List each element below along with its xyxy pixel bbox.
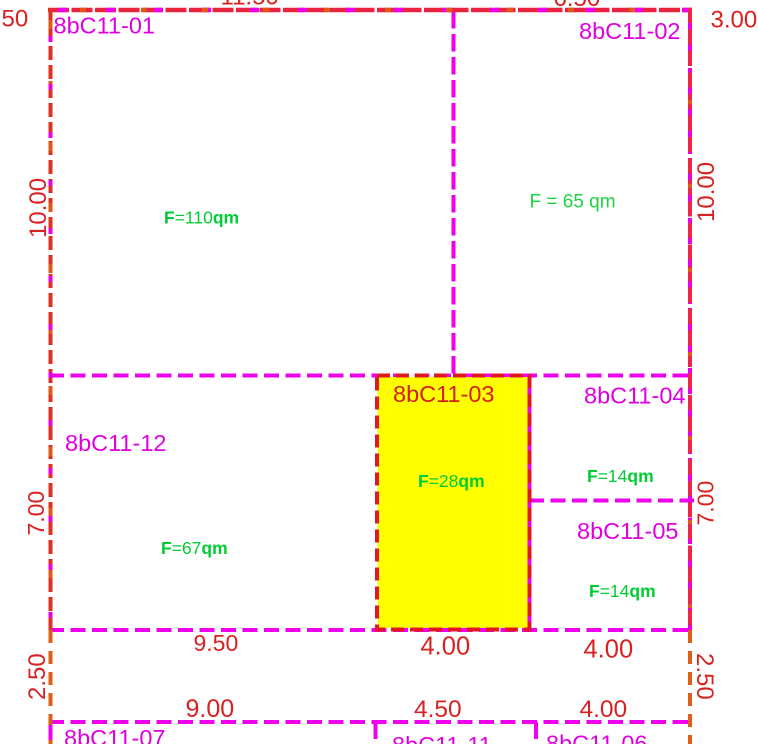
svg-text:8bC11-07: 8bC11-07 bbox=[64, 725, 165, 744]
svg-text:50: 50 bbox=[2, 6, 29, 33]
svg-text:8bC11-06: 8bC11-06 bbox=[546, 731, 647, 744]
svg-text:4.50: 4.50 bbox=[414, 696, 462, 723]
svg-text:8bC11-11: 8bC11-11 bbox=[392, 732, 492, 744]
svg-text:4.00: 4.00 bbox=[584, 636, 634, 664]
svg-text:8bC11-04: 8bC11-04 bbox=[584, 383, 685, 409]
svg-text:3.00: 3.00 bbox=[711, 7, 758, 34]
svg-text:2.50: 2.50 bbox=[24, 653, 51, 700]
svg-text:8bC11-01: 8bC11-01 bbox=[54, 13, 155, 39]
svg-text:4.00: 4.00 bbox=[421, 633, 471, 661]
svg-text:10.00: 10.00 bbox=[25, 178, 52, 238]
svg-text:F=67qm: F=67qm bbox=[161, 538, 228, 558]
svg-text:8bC11-03: 8bC11-03 bbox=[393, 381, 494, 407]
svg-text:11.50: 11.50 bbox=[221, 0, 279, 11]
svg-text:F=28qm: F=28qm bbox=[418, 471, 485, 491]
svg-text:8bC11-12: 8bC11-12 bbox=[65, 430, 166, 456]
svg-text:7.00: 7.00 bbox=[693, 481, 719, 526]
svg-text:8bC11-05: 8bC11-05 bbox=[577, 518, 678, 544]
svg-text:2.50: 2.50 bbox=[691, 653, 718, 700]
svg-text:7.00: 7.00 bbox=[23, 491, 49, 536]
svg-text:4.00: 4.00 bbox=[580, 696, 628, 723]
svg-text:F=14qm: F=14qm bbox=[587, 466, 654, 486]
svg-text:9.00: 9.00 bbox=[186, 695, 235, 723]
svg-text:F = 65 qm: F = 65 qm bbox=[530, 192, 616, 213]
svg-text:6.50: 6.50 bbox=[554, 0, 601, 12]
svg-text:F=110qm: F=110qm bbox=[164, 208, 239, 228]
svg-text:8bC11-02: 8bC11-02 bbox=[579, 18, 680, 44]
svg-text:10.00: 10.00 bbox=[693, 162, 720, 222]
svg-text:9.50: 9.50 bbox=[194, 630, 239, 656]
svg-text:F=14qm: F=14qm bbox=[589, 581, 656, 601]
